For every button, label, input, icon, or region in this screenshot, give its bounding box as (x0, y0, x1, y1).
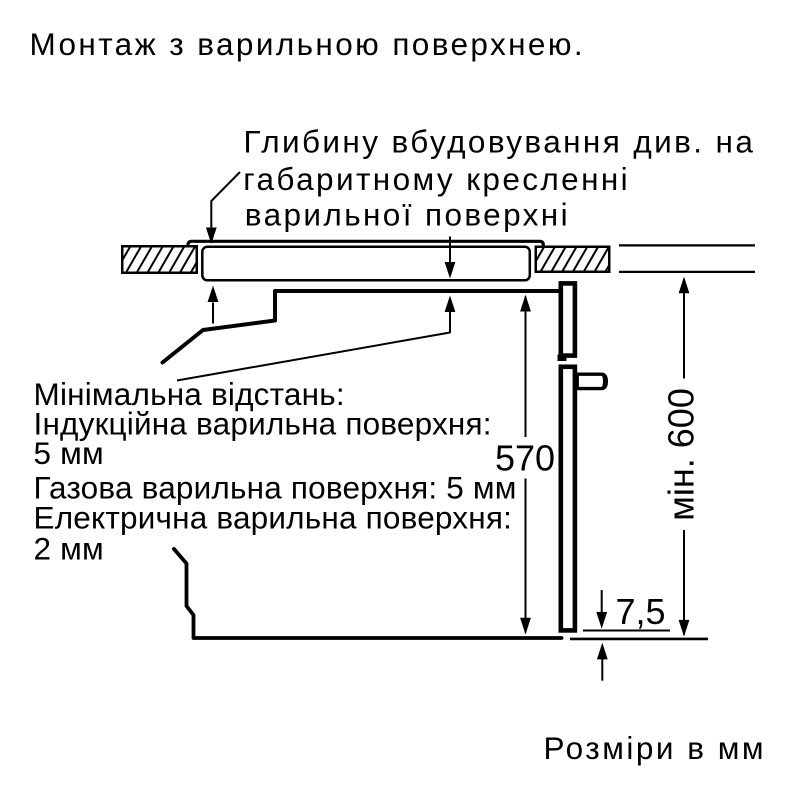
svg-text:габаритному кресленні: габаритному кресленні (243, 161, 630, 197)
svg-text:мін. 600: мін. 600 (661, 388, 702, 521)
svg-text:Розміри в мм: Розміри в мм (544, 730, 767, 766)
svg-text:7,5: 7,5 (616, 591, 666, 632)
svg-text:Електрична варильна поверхня:: Електрична варильна поверхня: (34, 500, 513, 536)
svg-text:5 мм: 5 мм (34, 435, 104, 471)
svg-text:варильної поверхні: варильної поверхні (245, 196, 570, 232)
svg-text:2 мм: 2 мм (34, 531, 104, 567)
svg-text:Монтаж з варильною поверхнею.: Монтаж з варильною поверхнею. (30, 26, 586, 62)
svg-text:Глибину вбудовування див. на: Глибину вбудовування див. на (244, 123, 756, 159)
